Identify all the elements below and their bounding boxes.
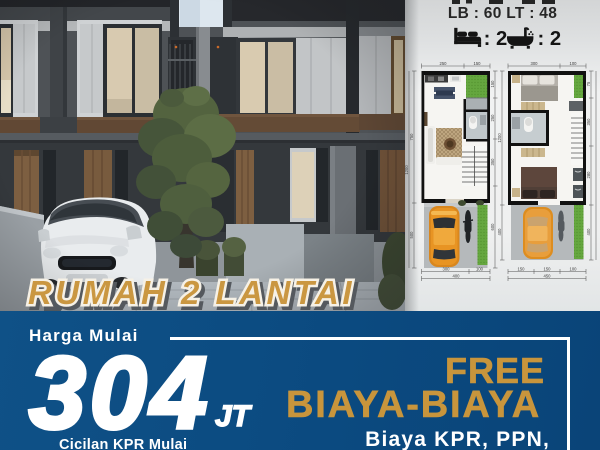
svg-text:: 2: : 2 [484, 28, 508, 50]
svg-text:300: 300 [531, 61, 539, 66]
svg-text:350: 350 [490, 158, 495, 166]
svg-text:100: 100 [476, 267, 484, 272]
svg-text:400: 400 [586, 228, 591, 236]
svg-text:350: 350 [586, 118, 591, 126]
svg-text:250: 250 [490, 114, 495, 122]
svg-text:150: 150 [544, 267, 552, 272]
svg-text:450: 450 [544, 274, 552, 279]
svg-text:250: 250 [440, 61, 448, 66]
svg-text:100: 100 [570, 61, 578, 66]
svg-text:280: 280 [586, 171, 591, 179]
svg-text:: 2: : 2 [537, 28, 561, 50]
svg-text:RUMAH 2 LANTAI: RUMAH 2 LANTAI [28, 274, 355, 311]
svg-text:300: 300 [443, 267, 451, 272]
svg-text:400: 400 [453, 274, 461, 279]
svg-text:100: 100 [570, 267, 578, 272]
svg-text:150: 150 [474, 61, 482, 66]
svg-text:150: 150 [490, 80, 495, 88]
svg-text:75: 75 [586, 81, 591, 86]
svg-text:400: 400 [497, 228, 502, 236]
svg-text:600: 600 [490, 223, 495, 231]
svg-text:1200: 1200 [497, 133, 502, 143]
svg-text:150: 150 [518, 267, 526, 272]
